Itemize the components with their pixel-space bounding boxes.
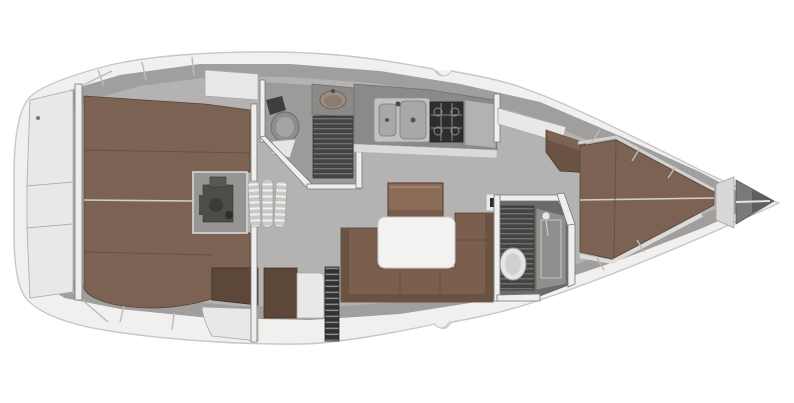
yacht-floorplan [0, 0, 794, 403]
bow-bulkhead-band [716, 177, 734, 228]
aft-cabin-cabinet-top [205, 70, 258, 100]
shower-head [542, 212, 550, 220]
aft-head-wall-bottom [307, 184, 360, 189]
settee-backrest-right [485, 213, 493, 302]
engine-mount [199, 195, 205, 215]
aft-head-sink-bowl [324, 95, 342, 107]
bow [716, 177, 774, 228]
settee-backrest-bottom [341, 294, 493, 302]
forward-head-wall-top [494, 195, 560, 201]
forward-head-wall-bottom [497, 294, 540, 301]
aft-head-shower-grate [313, 116, 353, 178]
forward-head-toilet-seat [505, 253, 521, 275]
nav-seat-cabinet [264, 268, 297, 318]
companionway [248, 179, 287, 227]
locker-latch [36, 116, 40, 120]
louvered-locker-panel [325, 267, 339, 341]
aft-head-faucet [331, 89, 335, 93]
forward-head-wall-right [568, 224, 575, 287]
engine-manifold [210, 177, 226, 187]
nav-table [297, 273, 324, 318]
stern-locker-middle [27, 182, 73, 228]
galley-faucet [396, 102, 401, 107]
forward-head-wall-left [494, 195, 500, 301]
saloon-table-cabinet-shadow [388, 210, 443, 217]
settee-backrest-left [341, 228, 349, 302]
stern-locker-bottom [27, 224, 73, 298]
companionway-step-2 [262, 179, 273, 227]
floorplan-canvas [0, 0, 794, 403]
stern-bulkhead-wall [75, 84, 82, 300]
engine-compartment [193, 172, 247, 233]
galley-fridge-top [465, 100, 496, 148]
engine-pulley [209, 198, 223, 212]
galley-stove [430, 102, 463, 142]
aft-head-toilet-seat [276, 117, 294, 137]
anchor-locker-divider [736, 201, 770, 202]
galley-sink-drain-small [385, 118, 389, 122]
saloon-table [378, 217, 455, 268]
forward-head [494, 193, 575, 301]
aft-cabin [84, 70, 258, 342]
aft-berth-center-seam [84, 200, 193, 201]
galley-sink-drain-large [411, 118, 416, 123]
companionway-step-3 [274, 181, 287, 228]
stove-body [430, 102, 463, 142]
stern-locker-top [27, 90, 73, 186]
engine-alternator [225, 211, 233, 219]
companionway-step-1 [248, 181, 261, 228]
aft-head-wall-left [260, 80, 265, 142]
